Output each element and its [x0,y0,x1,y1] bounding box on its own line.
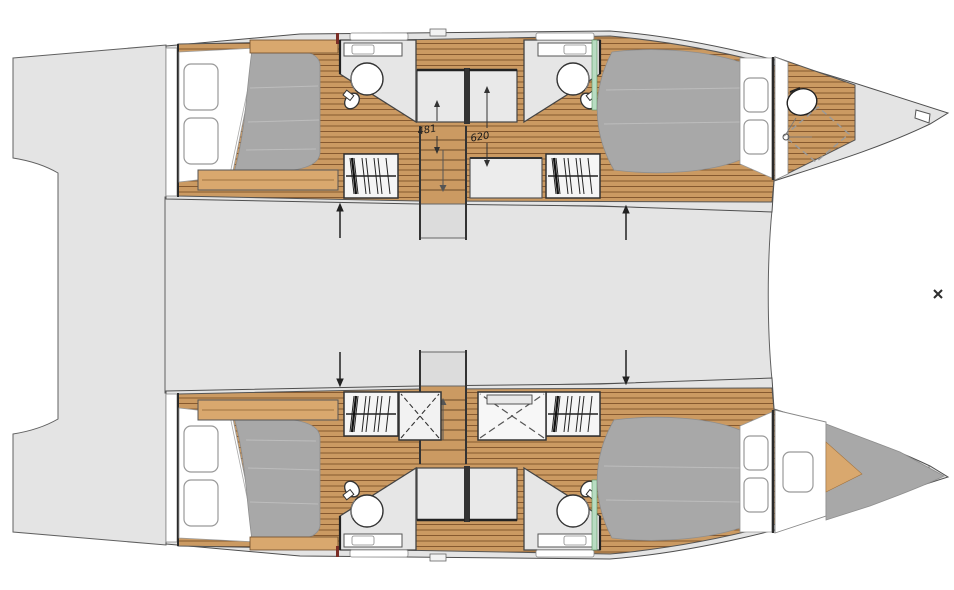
v-berth [775,410,944,533]
floor-plan-canvas: 481 620 [0,0,954,590]
forward-head [775,57,855,180]
locker-x-box [399,392,441,440]
bow-marker-icon [934,290,942,298]
desk [470,158,542,198]
bridge-deck [165,197,772,393]
shower-x-box [478,392,546,440]
pillow-icon [783,452,813,492]
catamaran-plan-svg: 481 620 [0,0,954,590]
stern-platform [13,45,166,545]
counter [487,395,532,404]
